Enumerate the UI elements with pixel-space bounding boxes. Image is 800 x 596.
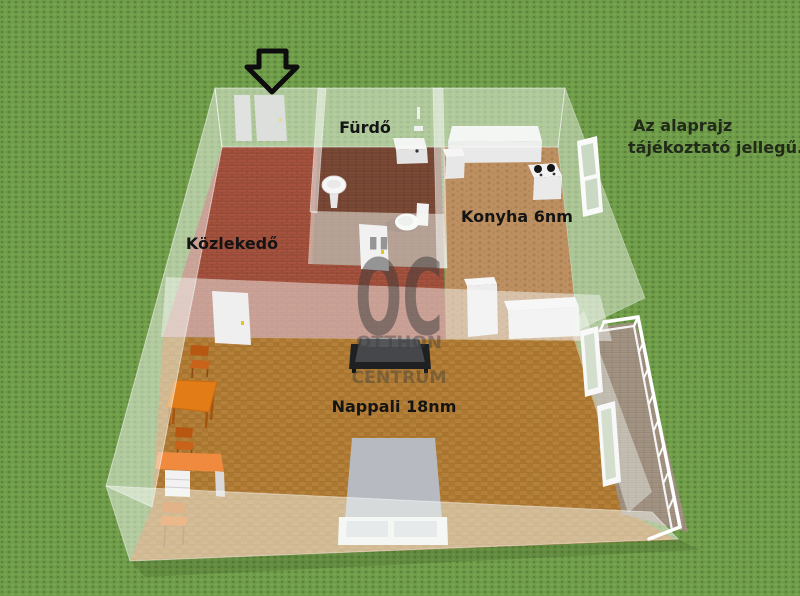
stove-burner-2 (547, 164, 555, 172)
floorplan-scene: Fürdő Konyha 6nm Közlekedő Nappali 18nm … (0, 0, 800, 596)
chair-1-seat (190, 360, 210, 369)
chair-1-back (190, 345, 209, 356)
stove-burner-1 (534, 165, 542, 173)
floorplan-canvas: Fürdő Konyha 6nm Közlekedő Nappali 18nm … (0, 0, 800, 596)
living-label: Nappali 18nm (332, 397, 457, 416)
note-line-1: Az alaprajz (633, 116, 732, 135)
watermark-line-2: CENTRUM (352, 368, 447, 388)
note-line-2: tájékoztató jellegű. (628, 138, 800, 157)
kitchen-cabinet-top (443, 148, 465, 157)
basin-drain (415, 149, 418, 152)
kitchen-cabinet-front (445, 156, 465, 179)
stove-knob-2 (553, 173, 556, 176)
stove-knob-1 (540, 174, 543, 177)
disclaimer-note: Az alaprajz tájékoztató jellegű. (628, 116, 800, 157)
hallway-door (212, 291, 251, 345)
hallway-door-handle (241, 321, 244, 325)
bathroom-label: Fürdő (339, 118, 391, 137)
hallway-label: Közlekedő (186, 234, 278, 253)
kitchen-label: Konyha 6nm (461, 207, 573, 226)
entrance-arrow-icon (247, 51, 297, 92)
stove-top (528, 163, 562, 178)
pedestal-sink-inner (327, 180, 341, 189)
desk-top (155, 452, 224, 472)
chair-2-back (175, 427, 193, 438)
stove-front (533, 176, 562, 200)
watermark-line-1: OTTHON (356, 333, 442, 353)
bath-counter-front (396, 149, 428, 164)
chair-2-seat (174, 441, 194, 450)
